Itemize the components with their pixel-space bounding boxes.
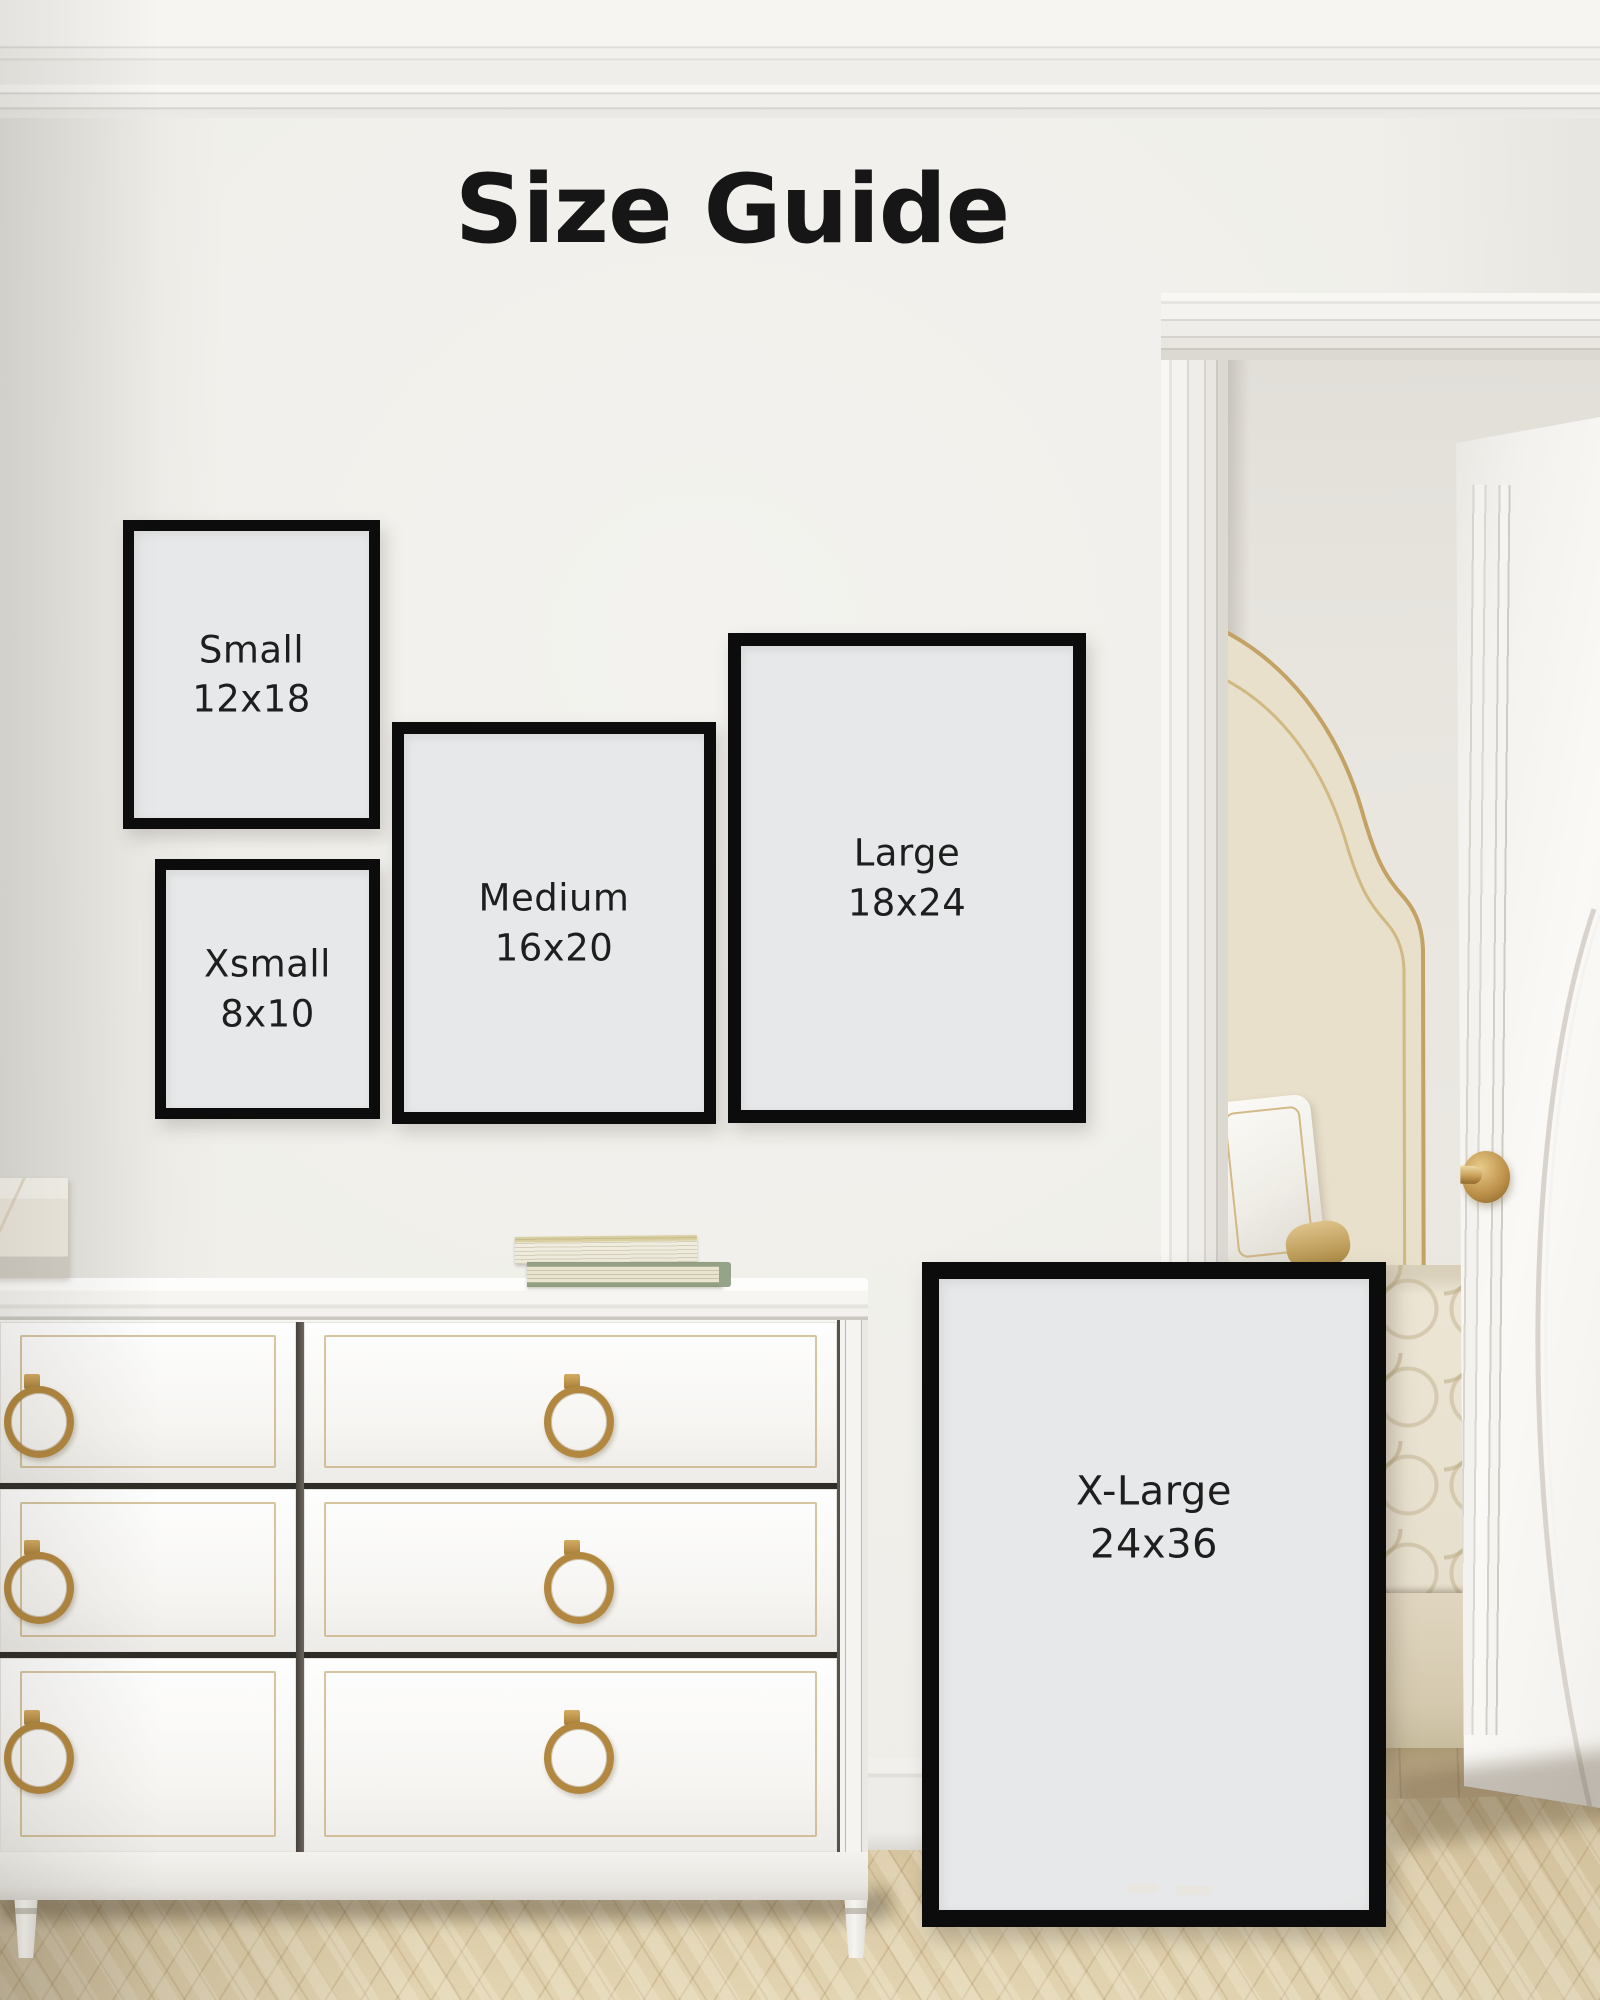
frame-size: 18x24: [741, 878, 1073, 928]
book-cover-edge: [719, 1262, 731, 1287]
decorative-box: [0, 1178, 68, 1278]
leg-ring: [8, 1908, 44, 1914]
dresser-top: [0, 1278, 868, 1320]
open-door: [1446, 405, 1600, 1820]
frame-size: 24x36: [939, 1519, 1369, 1573]
book: [527, 1262, 723, 1287]
ring-pull-icon: [540, 1374, 604, 1450]
frame-xsmall-label: Xsmall 8x10: [166, 939, 369, 1038]
frame-xlarge: X-Large 24x36: [922, 1262, 1386, 1927]
drawer-column-seam: [296, 1322, 304, 1852]
frame-foot-shim: [1128, 1884, 1158, 1893]
frame-large: Large 18x24: [728, 633, 1086, 1123]
ring-pull-icon: [0, 1374, 64, 1450]
page-title: Size Guide: [486, 150, 978, 270]
size-guide-scene: Size Guide Small 12x18 Xsmall 8x10 Mediu…: [0, 0, 1600, 2000]
dresser-leg: [8, 1900, 44, 1958]
frame-name: Medium: [404, 873, 704, 923]
frame-xlarge-label: X-Large 24x36: [939, 1465, 1369, 1572]
frame-size: 16x20: [404, 923, 704, 973]
frame-size: 8x10: [166, 989, 369, 1039]
door-casing-top: [1161, 293, 1600, 360]
ring-pull-icon: [0, 1710, 64, 1786]
frame-small: Small 12x18: [123, 520, 380, 829]
dresser-bottom-rail: [0, 1852, 868, 1900]
frame-foot-shim: [1176, 1886, 1212, 1895]
frame-name: X-Large: [939, 1465, 1369, 1519]
frame-name: Small: [134, 625, 369, 675]
frame-name: Xsmall: [166, 939, 369, 989]
door-arc-molding: [1490, 895, 1600, 1835]
frame-xsmall: Xsmall 8x10: [155, 859, 380, 1119]
ring-pull-icon: [540, 1540, 604, 1616]
dresser-corner-post: [837, 1320, 868, 1900]
crown-molding: [0, 0, 1600, 118]
frame-name: Large: [741, 828, 1073, 878]
frame-large-label: Large 18x24: [741, 828, 1073, 927]
frame-size: 12x18: [134, 675, 369, 725]
ring-pull-icon: [0, 1540, 64, 1616]
frame-medium: Medium 16x20: [392, 722, 716, 1124]
frame-medium-label: Medium 16x20: [404, 873, 704, 972]
frame-small-label: Small 12x18: [134, 625, 369, 724]
dresser: [0, 1278, 868, 1962]
book: [515, 1235, 697, 1264]
ring-pull-icon: [540, 1710, 604, 1786]
